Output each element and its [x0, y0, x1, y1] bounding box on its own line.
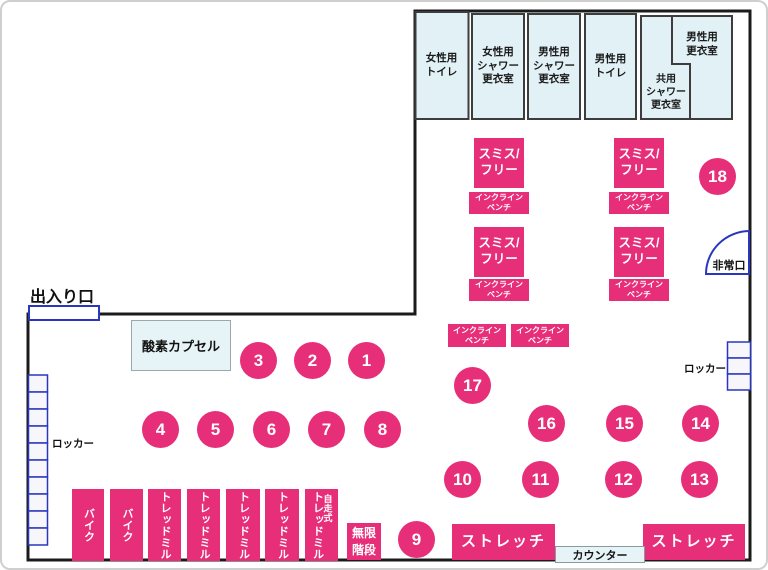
machine-circle-2: 2	[294, 342, 331, 379]
machine-circle-8: 8	[364, 411, 401, 448]
incline-bench-label: インクライン	[453, 326, 501, 336]
incline-bench-label: ベンチ	[627, 203, 651, 213]
room-label-line: 更衣室	[538, 73, 570, 87]
room-label-womens-shower-locker: 女性用 シャワー 更衣室	[472, 14, 524, 119]
incline-bench-1: インクライン ベンチ	[469, 192, 529, 214]
machine-circle-7: 7	[308, 411, 345, 448]
room-label-line: 女性用	[426, 52, 458, 66]
incline-bench-5: インクライン ベンチ	[448, 324, 506, 347]
gym-floorplan: 女性用 トイレ 女性用 シャワー 更衣室 男性用 シャワー 更衣室 男性用 トイ…	[0, 0, 768, 570]
locker-label-left: ロッカー	[52, 436, 94, 451]
room-label-line: シャワー	[646, 86, 686, 99]
incline-bench-label: ベンチ	[528, 336, 552, 346]
locker-label-right: ロッカー	[684, 361, 726, 376]
incline-bench-label: インクライン	[615, 193, 663, 203]
smith-free-machine-4: スミス/ フリー	[614, 227, 664, 277]
machine-circle-13: 13	[681, 461, 718, 498]
bike-label: バイク	[83, 508, 94, 543]
treadmill-4: トレッドミル	[265, 489, 299, 561]
machine-circle-6: 6	[253, 411, 290, 448]
oxygen-capsule: 酸素カプセル	[131, 320, 231, 371]
stretch-area-right: ストレッチ	[643, 524, 745, 560]
incline-bench-3: インクライン ベンチ	[469, 279, 529, 301]
room-label-line: トイレ	[595, 67, 627, 81]
smith-free-label: スミス/	[479, 147, 520, 163]
room-label-line: 男性用	[595, 53, 627, 67]
treadmill-label: トレッドミル	[198, 491, 209, 560]
machine-circle-1: 1	[348, 342, 385, 379]
treadmill-1: トレッドミル	[148, 489, 181, 561]
room-label-line: 共用	[656, 73, 676, 86]
smith-free-machine-2: スミス/ フリー	[614, 138, 664, 188]
machine-circle-10: 10	[444, 461, 481, 498]
bike-label: バイク	[121, 508, 132, 543]
entrance-door	[29, 306, 99, 320]
infinite-stairs-label: 階段	[352, 542, 376, 558]
room-label-line: 更衣室	[651, 99, 681, 112]
room-label-line: 男性用	[538, 46, 570, 60]
room-label-mens-locker-room: 男性用 更衣室	[675, 22, 729, 67]
incline-bench-label: ベンチ	[627, 290, 651, 300]
smith-free-machine-1: スミス/ フリー	[474, 138, 524, 188]
smith-free-label: フリー	[480, 163, 518, 179]
smith-free-label: スミス/	[619, 236, 660, 252]
treadmill-3: トレッドミル	[226, 489, 260, 561]
stretch-area-left: ストレッチ	[452, 524, 555, 560]
room-label-line: シャワー	[533, 60, 575, 74]
incline-bench-label: ベンチ	[465, 336, 489, 346]
incline-bench-label: インクライン	[475, 280, 523, 290]
room-label-line: トイレ	[426, 66, 458, 80]
emergency-exit-label: 非常口	[707, 257, 751, 273]
treadmill-label: トレッドミル	[277, 491, 288, 560]
machine-circle-14: 14	[682, 405, 719, 442]
room-label-shared-shower-locker: 共用 シャワー 更衣室	[639, 66, 693, 118]
room-label-line: 更衣室	[686, 45, 718, 59]
incline-bench-label: インクライン	[475, 193, 523, 203]
smith-free-label: フリー	[620, 163, 658, 179]
machine-circle-12: 12	[605, 461, 642, 498]
machine-circle-18: 18	[699, 158, 736, 195]
infinite-stairs: 無限 階段	[347, 523, 381, 560]
machine-circle-16: 16	[528, 405, 565, 442]
incline-bench-label: ベンチ	[487, 290, 511, 300]
machine-circle-11: 11	[522, 461, 559, 498]
bike-1: バイク	[72, 489, 104, 561]
incline-bench-label: インクライン	[516, 326, 564, 336]
room-label-line: シャワー	[477, 60, 519, 74]
room-label-line: 女性用	[482, 46, 514, 60]
smith-free-label: フリー	[620, 252, 658, 268]
machine-circle-5: 5	[197, 411, 234, 448]
machine-circle-9: 9	[398, 521, 435, 558]
incline-bench-2: インクライン ベンチ	[609, 192, 669, 214]
incline-bench-6: インクライン ベンチ	[511, 324, 569, 347]
room-label-mens-toilet: 男性用 トイレ	[585, 14, 636, 119]
incline-bench-label: インクライン	[615, 280, 663, 290]
treadmill-sublabel: 自走式	[323, 494, 332, 523]
infinite-stairs-label: 無限	[352, 525, 376, 541]
smith-free-label: フリー	[480, 252, 518, 268]
treadmill-label: トレッドミル	[238, 491, 249, 560]
locker-stack-right	[728, 342, 751, 390]
machine-circle-17: 17	[454, 367, 491, 404]
room-label-mens-shower-locker: 男性用 シャワー 更衣室	[528, 14, 580, 119]
locker-column-left	[29, 375, 48, 545]
machine-circle-15: 15	[606, 405, 643, 442]
room-label-line: 更衣室	[482, 73, 514, 87]
machine-circle-4: 4	[142, 411, 179, 448]
smith-free-label: スミス/	[479, 236, 520, 252]
room-label-line: 男性用	[686, 31, 718, 45]
treadmill-2: トレッドミル	[187, 489, 220, 561]
room-label-womens-toilet: 女性用 トイレ	[415, 12, 468, 119]
smith-free-label: スミス/	[619, 147, 660, 163]
incline-bench-4: インクライン ベンチ	[609, 279, 669, 301]
treadmill-label: トレッドミル	[312, 491, 323, 560]
smith-free-machine-3: スミス/ フリー	[474, 227, 524, 277]
incline-bench-label: ベンチ	[487, 203, 511, 213]
bike-2: バイク	[110, 489, 143, 561]
treadmill-label: トレッドミル	[159, 491, 170, 560]
entrance-label: 出入り口	[30, 283, 94, 307]
counter: カウンター	[555, 546, 645, 563]
machine-circle-3: 3	[240, 342, 277, 379]
treadmill-self-propelled: トレッドミル 自走式	[305, 489, 338, 561]
